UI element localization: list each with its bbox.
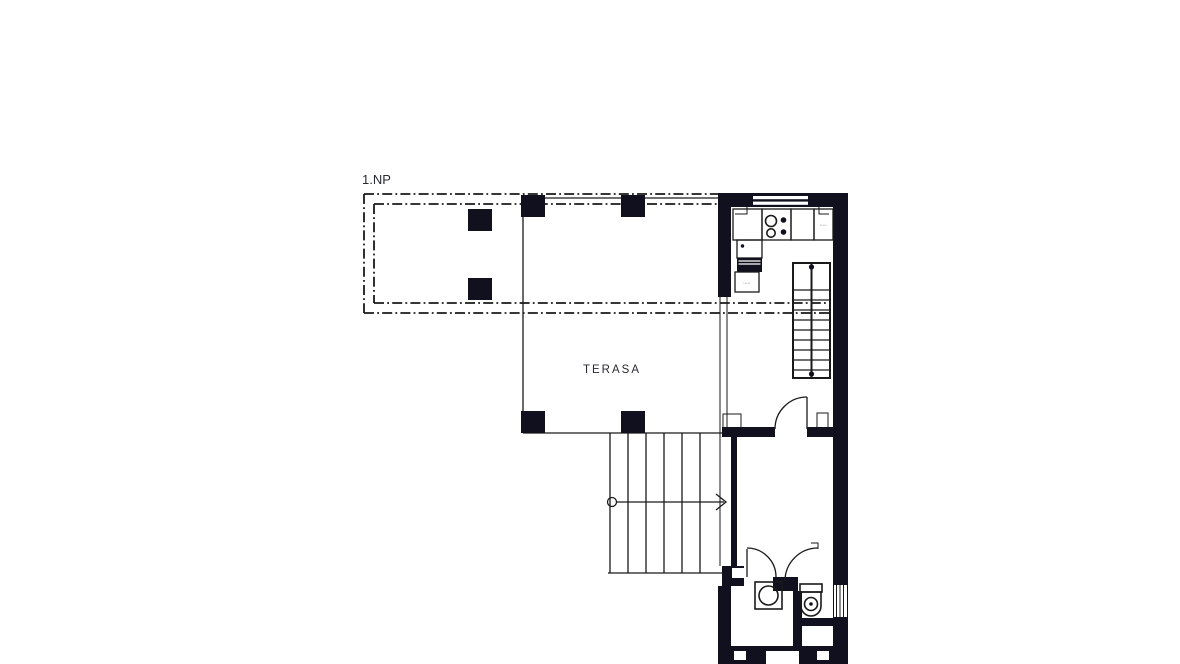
floor-title-label: 1.NP [362,172,391,187]
cabinet-knob-dot [741,244,744,247]
exterior-stairs [608,433,727,573]
square-columns [468,195,645,433]
wc-door [785,548,818,581]
bathroom-door [747,548,776,577]
hall-door [775,397,807,429]
stair-direction-arrow [608,494,727,510]
entry-door-recess [766,651,799,664]
fridge-filled-icon [737,258,762,272]
stove-burners-icon [766,216,787,238]
wall-return-marks [723,413,829,664]
internal-stairs [793,263,830,378]
toilet-icon [800,584,822,616]
floorplan-canvas: TERASA [0,0,1180,664]
roof-overhang-outline [364,194,830,313]
kitchen-counter: ••••• ••••• [733,207,833,292]
right-wall-window [834,585,847,617]
cabinet-tiny-label-left: ••••• [743,281,750,285]
terrace-room-label: TERASA [583,364,641,376]
floorplan-drawing: TERASA [0,0,1180,664]
cabinet-tiny-label-right: ••••• [820,223,827,227]
terrace: TERASA [468,195,737,566]
